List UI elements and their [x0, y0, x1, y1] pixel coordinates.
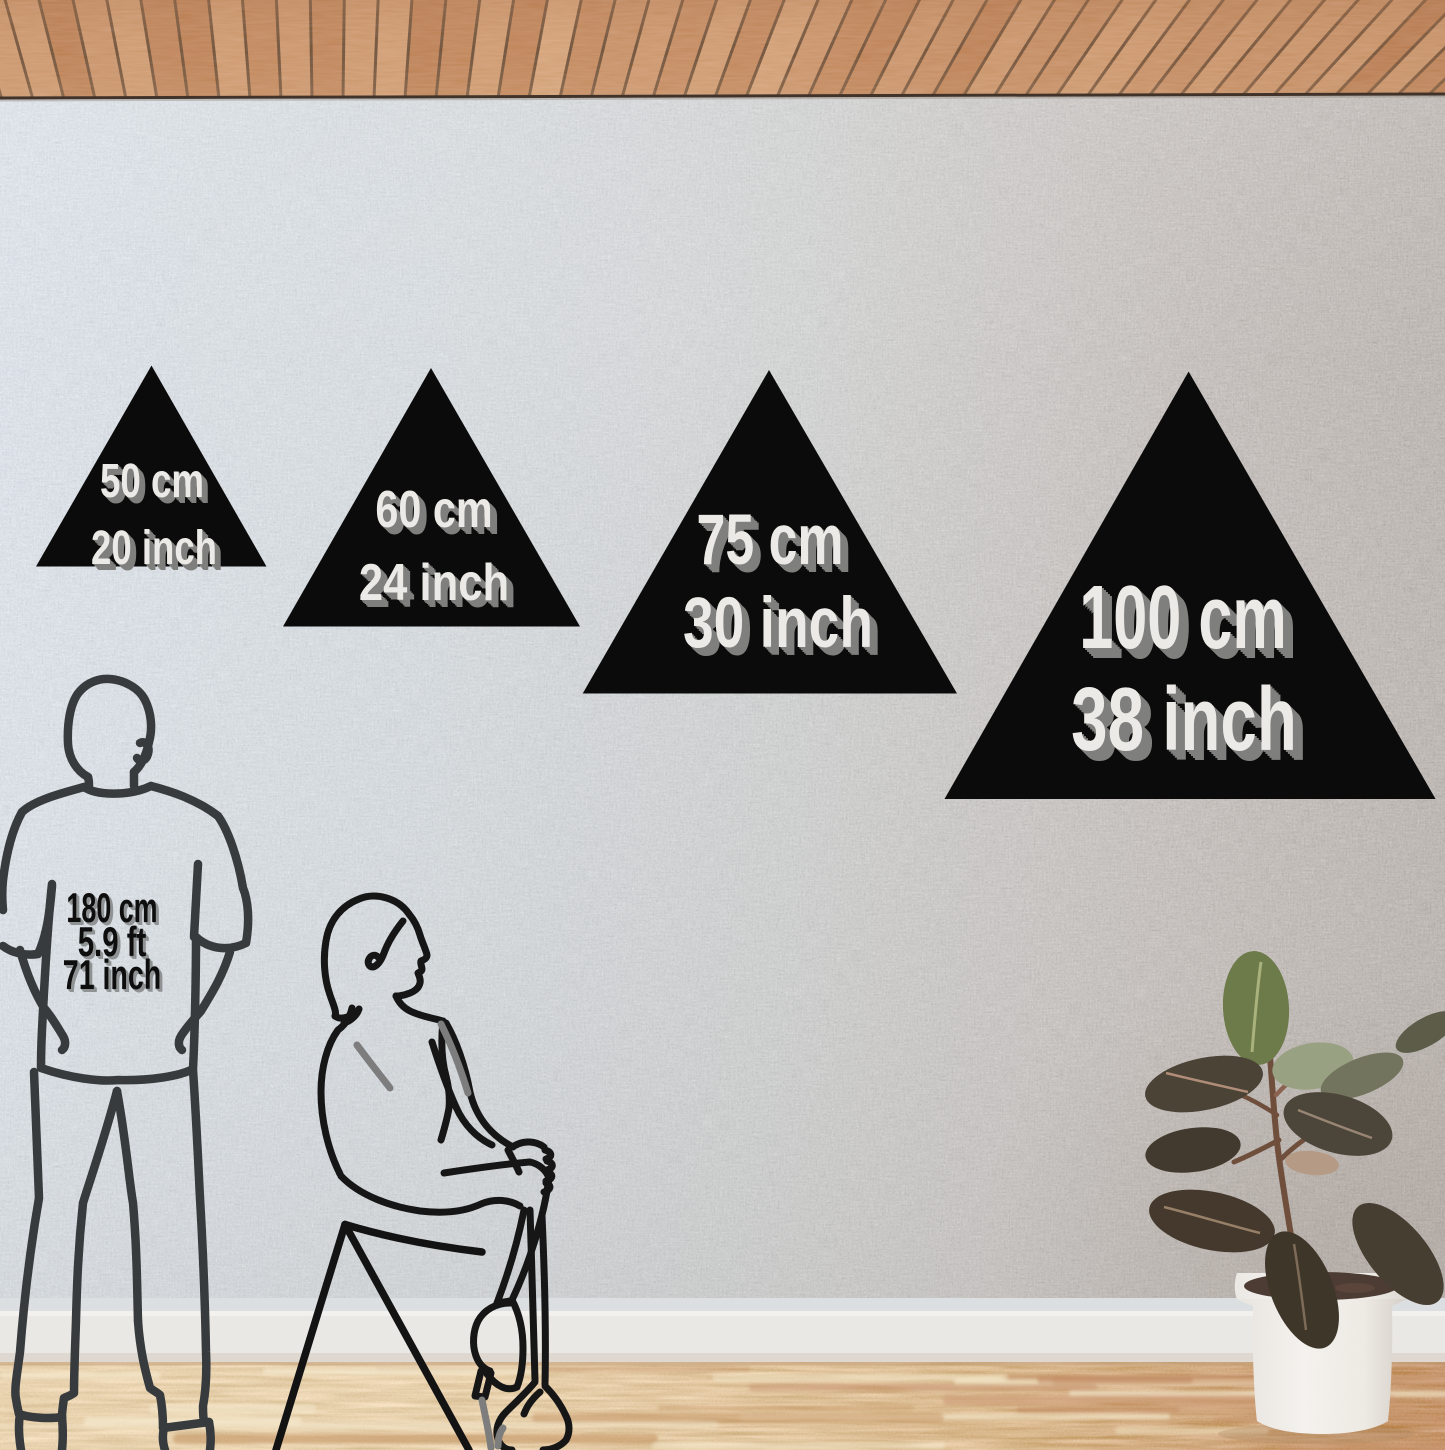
svg-text:75 cm: 75 cm: [697, 501, 844, 580]
svg-text:24 inch: 24 inch: [359, 554, 509, 611]
svg-text:50 cm: 50 cm: [100, 454, 204, 508]
svg-text:30 inch: 30 inch: [683, 583, 873, 662]
svg-text:60 cm: 60 cm: [375, 479, 492, 538]
svg-text:38 inch: 38 inch: [1071, 669, 1297, 770]
svg-text:100 cm: 100 cm: [1079, 567, 1287, 668]
svg-text:20 inch: 20 inch: [91, 521, 217, 575]
svg-text:71 inch: 71 inch: [63, 950, 161, 998]
